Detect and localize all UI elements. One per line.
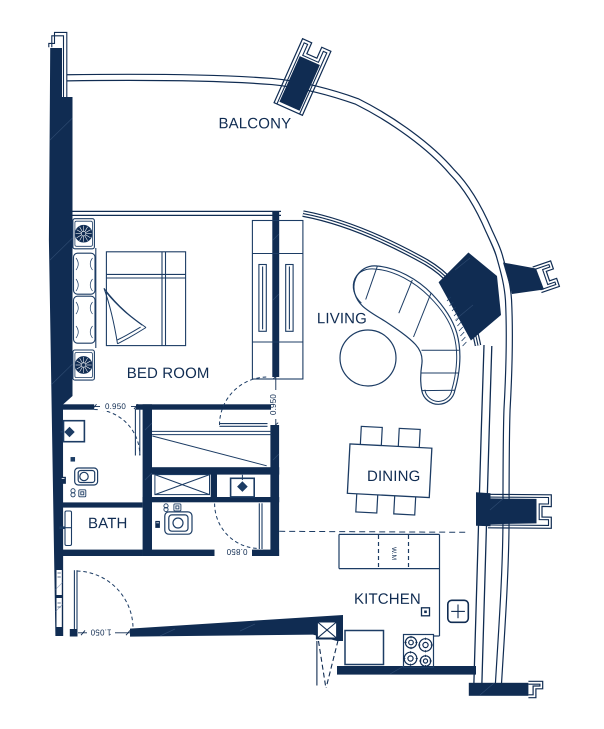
- svg-text:0.950: 0.950: [269, 394, 278, 415]
- svg-text:1.050: 1.050: [90, 627, 111, 636]
- svg-text:DINING: DINING: [367, 468, 420, 485]
- svg-text:LIVING: LIVING: [317, 310, 367, 327]
- svg-text:BED ROOM: BED ROOM: [127, 365, 210, 382]
- svg-text:W.M: W.M: [390, 547, 397, 560]
- svg-text:BATH: BATH: [88, 515, 128, 532]
- svg-text:0.950: 0.950: [105, 402, 126, 411]
- svg-text:KITCHEN: KITCHEN: [354, 591, 421, 608]
- svg-text:BALCONY: BALCONY: [218, 115, 291, 132]
- svg-text:0.850: 0.850: [226, 547, 247, 556]
